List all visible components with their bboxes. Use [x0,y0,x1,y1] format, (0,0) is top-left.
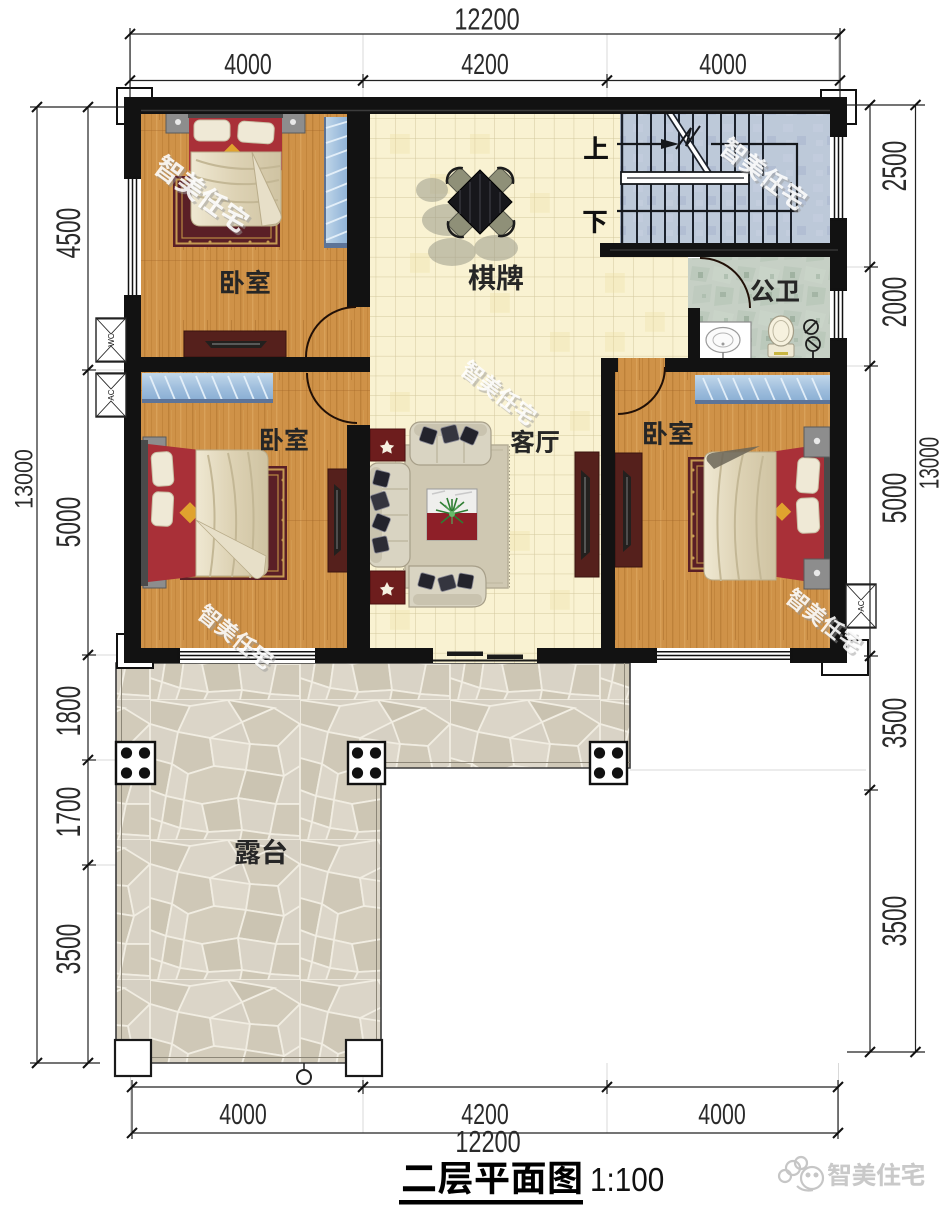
svg-text:AC: AC [107,389,116,400]
svg-text:12200: 12200 [454,1,519,36]
svg-text:1800: 1800 [51,686,89,737]
svg-text:4000: 4000 [699,49,747,81]
svg-text:4200: 4200 [461,49,509,81]
svg-text:2000: 2000 [877,277,915,328]
svg-text:3500: 3500 [51,924,89,975]
svg-text:5000: 5000 [877,473,915,524]
svg-text:WC: WC [107,333,116,347]
svg-text:1700: 1700 [51,787,89,838]
svg-text:4500: 4500 [51,208,89,259]
svg-text:4000: 4000 [698,1099,746,1131]
svg-text:13000: 13000 [10,449,38,509]
svg-text:2500: 2500 [877,141,915,192]
svg-text:4000: 4000 [219,1099,267,1131]
svg-text:13000: 13000 [914,437,946,489]
svg-text:3500: 3500 [877,896,915,947]
svg-text:5000: 5000 [51,497,89,548]
svg-text:12200: 12200 [455,1124,520,1159]
svg-text:AC: AC [857,600,866,611]
svg-text:3500: 3500 [877,698,915,749]
svg-text:1:100: 1:100 [590,1162,664,1199]
svg-text:4000: 4000 [224,49,272,81]
